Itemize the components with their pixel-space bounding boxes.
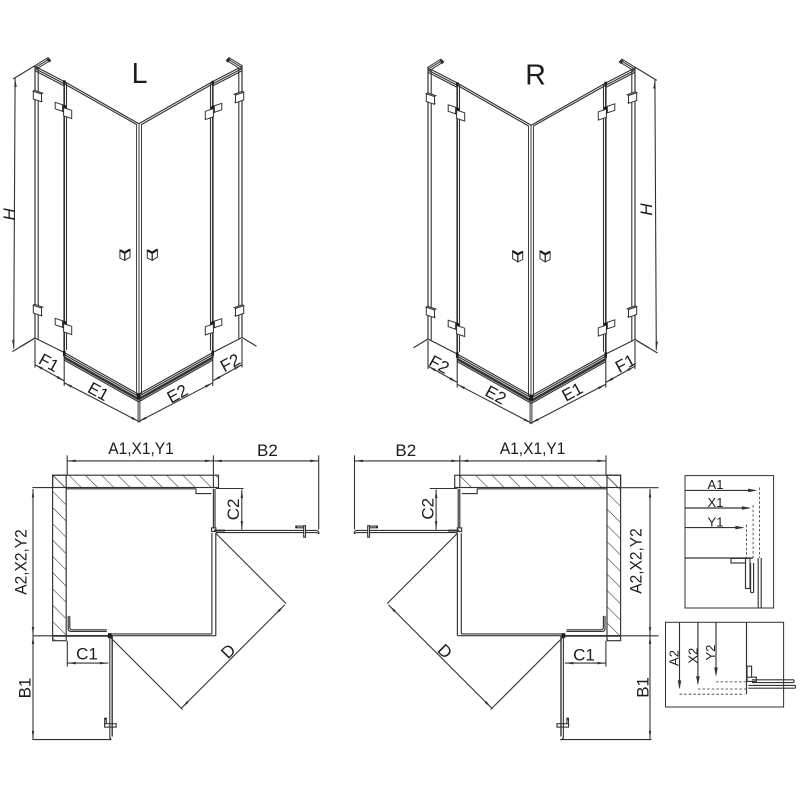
svg-text:B1: B1: [16, 678, 35, 699]
svg-text:C2: C2: [224, 499, 243, 521]
svg-text:B2: B2: [257, 441, 278, 460]
svg-text:Y1: Y1: [708, 514, 724, 529]
svg-text:B2: B2: [395, 441, 416, 460]
svg-text:A1: A1: [708, 477, 724, 492]
svg-text:C2: C2: [418, 498, 437, 520]
svg-text:X1: X1: [708, 495, 724, 510]
svg-text:A2: A2: [667, 650, 682, 666]
svg-text:Y2: Y2: [703, 645, 718, 661]
svg-text:L: L: [132, 58, 148, 90]
svg-text:H: H: [637, 203, 656, 216]
svg-text:A1,X1,Y1: A1,X1,Y1: [500, 439, 566, 458]
svg-text:C1: C1: [76, 645, 98, 664]
svg-text:R: R: [525, 59, 546, 91]
svg-text:X2: X2: [685, 648, 700, 664]
svg-text:A1,X1,Y1: A1,X1,Y1: [108, 439, 174, 458]
svg-text:A2,X2,Y2: A2,X2,Y2: [627, 528, 646, 594]
svg-text:H: H: [0, 207, 19, 220]
svg-text:C1: C1: [573, 646, 595, 665]
svg-text:B1: B1: [633, 677, 652, 698]
svg-text:A2,X2,Y2: A2,X2,Y2: [11, 529, 30, 595]
